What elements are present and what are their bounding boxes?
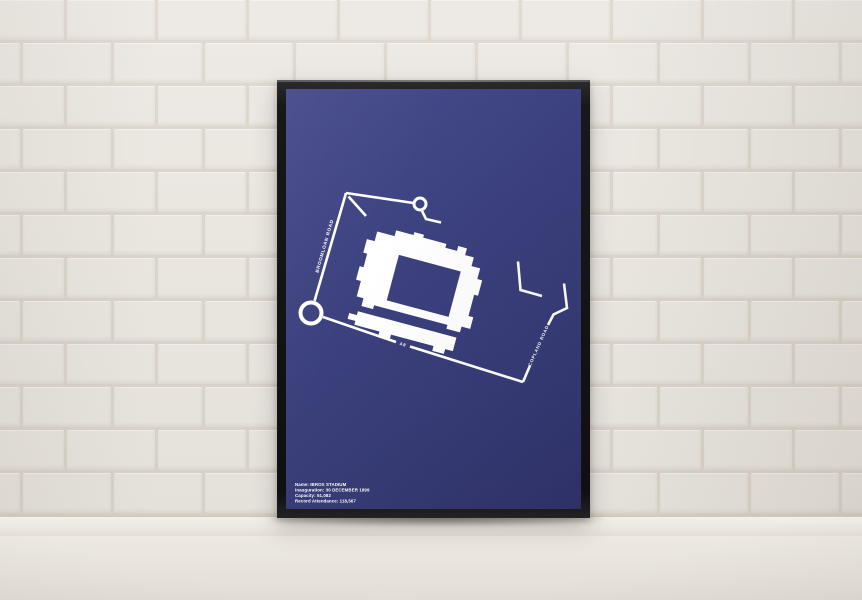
brick bbox=[751, 387, 839, 427]
brick bbox=[704, 172, 792, 212]
brick bbox=[660, 387, 748, 427]
brick bbox=[795, 430, 862, 470]
brick bbox=[158, 258, 246, 298]
brick bbox=[0, 473, 20, 513]
brick bbox=[842, 473, 862, 513]
brick bbox=[67, 430, 155, 470]
road-broomloan bbox=[315, 193, 346, 301]
brick bbox=[0, 129, 20, 169]
brick bbox=[613, 172, 701, 212]
brick bbox=[67, 86, 155, 126]
poster-artwork: BROOMLOAN ROAD COPLAND ROAD A8 Name: IBR… bbox=[286, 89, 581, 509]
brick-row bbox=[0, 43, 862, 83]
brick bbox=[660, 215, 748, 255]
brick bbox=[23, 129, 111, 169]
brick bbox=[751, 215, 839, 255]
brick bbox=[0, 430, 64, 470]
brick bbox=[0, 86, 64, 126]
brick bbox=[613, 344, 701, 384]
brick bbox=[67, 172, 155, 212]
brick bbox=[0, 0, 64, 40]
brick bbox=[751, 301, 839, 341]
brick bbox=[158, 344, 246, 384]
brick bbox=[613, 430, 701, 470]
brick bbox=[795, 0, 862, 40]
brick bbox=[751, 43, 839, 83]
brick bbox=[842, 129, 862, 169]
brick bbox=[67, 0, 155, 40]
brick bbox=[387, 43, 475, 83]
info-name: Name: IBROX STADIUM bbox=[295, 482, 347, 487]
brick bbox=[704, 86, 792, 126]
brick bbox=[431, 0, 519, 40]
brick bbox=[795, 258, 862, 298]
brick bbox=[0, 387, 20, 427]
road-side-street bbox=[518, 262, 542, 297]
roundabout-small bbox=[414, 198, 426, 210]
road-hook bbox=[422, 211, 441, 223]
brick bbox=[704, 0, 792, 40]
brick bbox=[249, 0, 337, 40]
shelf bbox=[0, 516, 862, 600]
brick bbox=[114, 215, 202, 255]
brick bbox=[67, 258, 155, 298]
brick bbox=[114, 129, 202, 169]
brick bbox=[613, 0, 701, 40]
label-a8: A8 bbox=[399, 341, 407, 348]
brick bbox=[23, 215, 111, 255]
brick-row bbox=[0, 0, 862, 40]
road-copland-north bbox=[548, 284, 567, 326]
brick bbox=[751, 129, 839, 169]
brick bbox=[660, 301, 748, 341]
stadium-group bbox=[343, 221, 490, 359]
brick bbox=[569, 43, 657, 83]
road-a8-east bbox=[410, 347, 523, 383]
brick bbox=[158, 0, 246, 40]
label-copland-road: COPLAND ROAD bbox=[527, 324, 550, 366]
brick bbox=[751, 473, 839, 513]
info-capacity: Capacity: 51,082 bbox=[295, 493, 331, 498]
roundabout-large bbox=[301, 303, 322, 324]
brick bbox=[114, 473, 202, 513]
brick bbox=[0, 301, 20, 341]
brick bbox=[114, 387, 202, 427]
stadium-poster: BROOMLOAN ROAD COPLAND ROAD A8 Name: IBR… bbox=[286, 89, 581, 509]
brick bbox=[23, 301, 111, 341]
brick bbox=[340, 0, 428, 40]
road-copland-south bbox=[523, 366, 530, 383]
info-record-attendance: Record Attendance: 118,567 bbox=[295, 499, 356, 504]
shelf-front-face bbox=[0, 536, 862, 600]
brick bbox=[842, 301, 862, 341]
brick bbox=[0, 172, 64, 212]
brick bbox=[23, 43, 111, 83]
brick bbox=[660, 43, 748, 83]
brick bbox=[704, 344, 792, 384]
brick bbox=[842, 387, 862, 427]
info-inauguration: Inauguration: 30 DECEMBER 1899 bbox=[295, 488, 370, 493]
brick bbox=[0, 43, 20, 83]
brick bbox=[613, 86, 701, 126]
brick bbox=[795, 172, 862, 212]
road-spur bbox=[349, 197, 367, 217]
brick bbox=[660, 129, 748, 169]
brick bbox=[795, 86, 862, 126]
brick bbox=[704, 258, 792, 298]
brick bbox=[67, 344, 155, 384]
brick bbox=[0, 215, 20, 255]
brick bbox=[114, 301, 202, 341]
brick bbox=[842, 215, 862, 255]
brick bbox=[613, 258, 701, 298]
brick bbox=[0, 344, 64, 384]
brick bbox=[296, 43, 384, 83]
brick bbox=[158, 172, 246, 212]
brick bbox=[0, 258, 64, 298]
brick bbox=[478, 43, 566, 83]
brick bbox=[158, 430, 246, 470]
brick bbox=[205, 43, 293, 83]
brick bbox=[660, 473, 748, 513]
brick bbox=[704, 430, 792, 470]
brick bbox=[23, 473, 111, 513]
brick bbox=[158, 86, 246, 126]
brick bbox=[23, 387, 111, 427]
brick bbox=[842, 43, 862, 83]
brick bbox=[795, 344, 862, 384]
road-top bbox=[346, 193, 414, 203]
brick bbox=[522, 0, 610, 40]
picture-frame: BROOMLOAN ROAD COPLAND ROAD A8 Name: IBR… bbox=[277, 80, 590, 518]
photo-scene: BROOMLOAN ROAD COPLAND ROAD A8 Name: IBR… bbox=[0, 0, 862, 600]
brick bbox=[114, 43, 202, 83]
